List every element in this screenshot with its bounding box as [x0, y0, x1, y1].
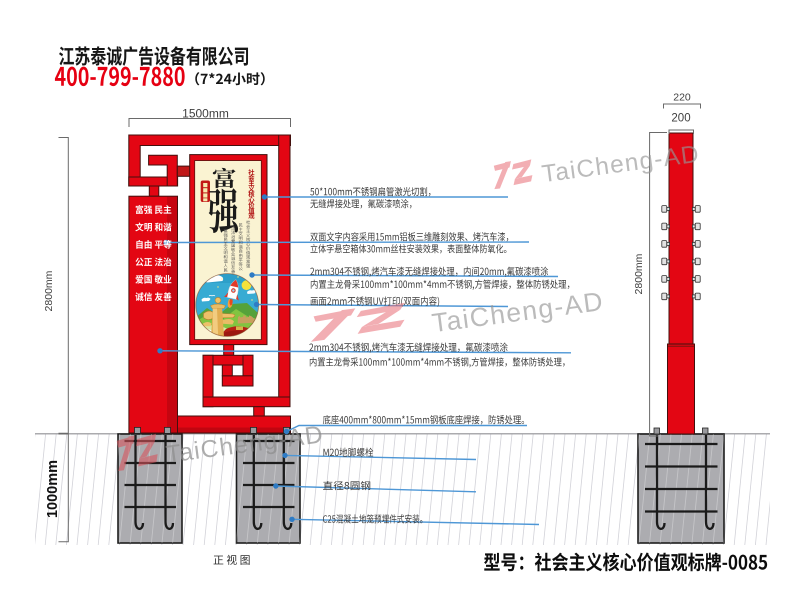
- svg-text:1500mm: 1500mm: [182, 107, 229, 121]
- svg-text:1000mm: 1000mm: [45, 460, 61, 518]
- svg-text:200: 200: [671, 113, 690, 125]
- svg-text:220: 220: [673, 92, 691, 104]
- svg-text:2800mm: 2800mm: [633, 253, 645, 294]
- svg-text:2800mm: 2800mm: [43, 270, 55, 311]
